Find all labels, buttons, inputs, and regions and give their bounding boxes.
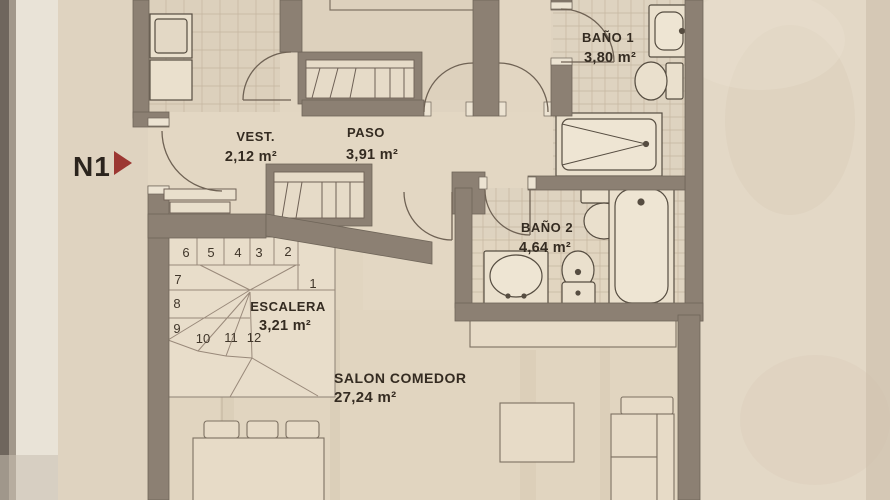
bano1-label: BAÑO 1: [582, 30, 634, 45]
n1-label: N1: [73, 151, 111, 182]
step-number: 1: [309, 276, 316, 291]
toilet-bowl: [635, 62, 667, 100]
vest-area: 2,12 m²: [225, 149, 277, 165]
kitchen-appliance-1-inner: [155, 19, 187, 53]
wall-bano1-left-bottom: [551, 60, 572, 116]
page-left-edge-shadow: [0, 0, 9, 500]
sofa-armrest: [621, 397, 673, 414]
lobby-floor: [499, 0, 551, 116]
salon-area: 27,24 m²: [334, 389, 396, 406]
shower-drain: [644, 142, 649, 147]
washbasin-tap: [522, 294, 526, 298]
jamb: [499, 102, 506, 116]
wardrobe-paso: [298, 52, 422, 104]
jamb: [528, 177, 536, 189]
bano2-bidet: [562, 251, 595, 306]
entrance-threshold-inner: [170, 202, 230, 213]
shower-inner: [562, 119, 656, 170]
paso-label: PASO: [347, 125, 385, 140]
bathtub-inner: [615, 189, 668, 303]
bano2-area: 4,64 m²: [519, 240, 571, 256]
toilet-tank: [666, 63, 683, 99]
step-number: 11: [224, 330, 238, 345]
wall-center-post: [473, 0, 499, 116]
wall-paso-top: [302, 100, 424, 116]
jamb: [148, 118, 169, 126]
bano1-shower-tray: [556, 113, 662, 176]
floorplan-canvas: 1 2 3 4 5 6 7 8 9 10 11 12: [0, 0, 890, 500]
page-left-corner-shade: [0, 455, 58, 500]
staircase: 1 2 3 4 5 6 7 8 9 10 11 12: [168, 237, 335, 397]
floor-streak: [600, 330, 610, 500]
bano1-washbasin: [649, 5, 689, 57]
step-number: 3: [255, 245, 262, 260]
wall-kitchen-left: [133, 0, 149, 118]
dining-chair: [204, 421, 239, 438]
sofa-back: [657, 414, 674, 500]
paper-mottle-3: [740, 355, 890, 485]
wall-vest-band: [148, 214, 266, 238]
washbasin-tap: [680, 29, 685, 34]
entrance-threshold-outer: [164, 189, 236, 200]
step-number: 2: [284, 244, 291, 259]
floorplan-photo: 1 2 3 4 5 6 7 8 9 10 11 12: [0, 0, 890, 500]
coffee-table: [500, 403, 574, 462]
wall-salon-right: [678, 315, 700, 500]
step-number: 7: [174, 272, 181, 287]
step-number: 4: [234, 245, 241, 260]
step-number: 5: [207, 245, 214, 260]
dining-chair: [286, 421, 319, 438]
escalera-label: ESCALERA: [250, 299, 326, 314]
paso-area: 3,91 m²: [346, 147, 398, 163]
kitchen-appliance-2: [150, 60, 192, 100]
vest-label: VEST.: [236, 129, 275, 144]
wall-bano2-top: [528, 176, 685, 190]
jamb: [479, 177, 487, 189]
bidet-tap: [576, 270, 581, 275]
dining-table: [193, 438, 324, 500]
paso-salon-passage-floor: [363, 214, 455, 310]
page-left-edge-fade: [9, 0, 16, 500]
bathtub-drain: [638, 199, 644, 205]
bano2-label: BAÑO 2: [521, 220, 573, 235]
bano1-area: 3,80 m²: [584, 50, 636, 66]
jamb: [551, 2, 572, 9]
washbasin-drain: [506, 294, 510, 298]
step-number: 9: [173, 321, 180, 336]
bano2-washbasin: [484, 251, 548, 305]
wall-bath-block-right: [685, 0, 703, 321]
bano2-bathtub: [609, 182, 674, 310]
stairs-outline: [168, 237, 335, 397]
step-number: 8: [173, 296, 180, 311]
bano1-toilet: [635, 62, 683, 100]
dining-chair: [247, 421, 278, 438]
washbasin-bowl: [655, 12, 683, 50]
step-number: 6: [182, 245, 189, 260]
salon-label: SALON COMEDOR: [334, 370, 467, 386]
wardrobe-interior: [306, 60, 414, 98]
step-number: 10: [196, 331, 210, 346]
sofa-cushion: [611, 457, 657, 500]
washbasin-bowl: [490, 255, 542, 297]
jamb: [466, 102, 473, 116]
sofa-cushion: [611, 414, 657, 457]
escalera-area: 3,21 m²: [259, 318, 311, 334]
kitchen-appliances: [150, 14, 192, 100]
wall-bano2-left: [455, 188, 472, 308]
wall-bano2-bottom: [455, 303, 703, 321]
wall-kitchen-bedroom: [280, 0, 302, 52]
bidet-drain: [576, 291, 580, 295]
